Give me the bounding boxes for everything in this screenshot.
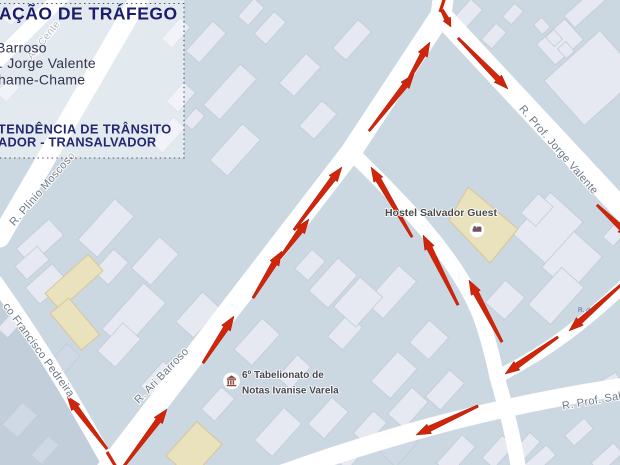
svg-text:R. d: R. d xyxy=(578,307,590,314)
svg-text:6º Tabelionato de: 6º Tabelionato de xyxy=(242,370,324,381)
svg-text:Hostel Salvador Guest: Hostel Salvador Guest xyxy=(385,207,498,219)
svg-text:ADOR - TRANSALVADOR: ADOR - TRANSALVADOR xyxy=(0,135,156,150)
svg-text:Barroso: Barroso xyxy=(0,40,47,56)
svg-text:AÇÃO DE TRÁFEGO: AÇÃO DE TRÁFEGO xyxy=(0,3,178,24)
svg-text:. Jorge Valente: . Jorge Valente xyxy=(0,55,96,71)
svg-text:hame-Chame: hame-Chame xyxy=(0,72,85,88)
svg-text:Notas Ivanise Varela: Notas Ivanise Varela xyxy=(242,386,339,397)
